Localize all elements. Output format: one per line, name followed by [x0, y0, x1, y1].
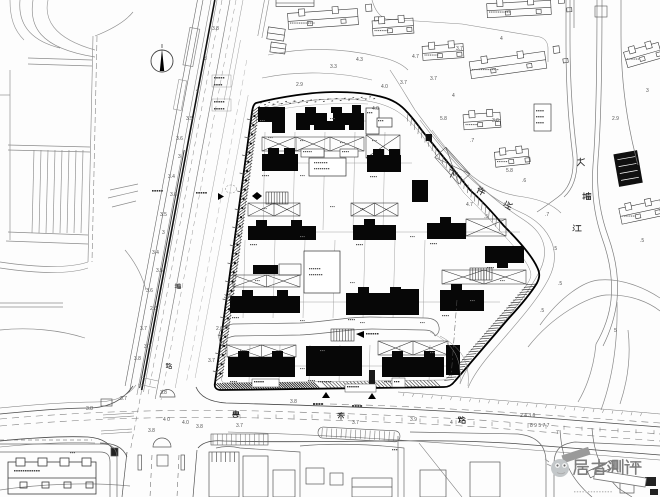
- svg-text:5.8: 5.8: [440, 116, 447, 122]
- svg-text:.5: .5: [640, 238, 644, 244]
- svg-text:4 0: 4 0: [163, 417, 170, 423]
- svg-text:4.7: 4.7: [412, 54, 419, 60]
- svg-text:3.4: 3.4: [224, 294, 231, 300]
- svg-text:3.7: 3.7: [120, 396, 127, 402]
- svg-text:.5: .5: [558, 281, 562, 287]
- svg-text:.5: .5: [484, 214, 488, 220]
- svg-text:7: 7: [556, 430, 559, 436]
- svg-text:3.3: 3.3: [330, 64, 337, 70]
- svg-text:3.8: 3.8: [134, 356, 141, 362]
- svg-text:3.7: 3.7: [140, 326, 147, 332]
- svg-text:4.0: 4.0: [182, 420, 189, 426]
- svg-text:3.7: 3.7: [144, 344, 151, 350]
- svg-text:4: 4: [452, 93, 455, 99]
- svg-text:4: 4: [500, 36, 503, 42]
- svg-text:3.7: 3.7: [430, 76, 437, 82]
- svg-text:4.7: 4.7: [466, 202, 473, 208]
- svg-text:3.7: 3.7: [236, 423, 243, 429]
- svg-text:3.5: 3.5: [156, 268, 163, 274]
- svg-text:3: 3: [162, 230, 165, 236]
- svg-text:3.9: 3.9: [410, 417, 417, 423]
- svg-text:2.6: 2.6: [150, 306, 157, 312]
- svg-text:.5: .5: [540, 308, 544, 314]
- svg-text:5: 5: [614, 328, 617, 334]
- svg-text:2.6: 2.6: [216, 326, 223, 332]
- svg-text:3.5: 3.5: [186, 116, 193, 122]
- svg-text:3.8: 3.8: [86, 406, 93, 412]
- svg-text:2.9: 2.9: [612, 116, 619, 122]
- svg-text:4: 4: [196, 88, 199, 94]
- svg-text:3: 3: [646, 88, 649, 94]
- svg-text:3: 3: [204, 56, 207, 62]
- svg-text:8 9 5 7 7: 8 9 5 7 7: [530, 423, 550, 429]
- svg-text:3: 3: [178, 154, 181, 160]
- svg-text:3.5: 3.5: [160, 212, 167, 218]
- svg-text:4: 4: [450, 420, 453, 426]
- svg-text:3.6: 3.6: [176, 136, 183, 142]
- svg-text:4.0: 4.0: [372, 106, 379, 112]
- svg-text:3.8: 3.8: [148, 428, 155, 434]
- svg-text:.7: .7: [545, 212, 549, 218]
- svg-text:3.4: 3.4: [168, 174, 175, 180]
- svg-text:2 4 3 6: 2 4 3 6: [520, 413, 536, 419]
- svg-text:.7: .7: [470, 138, 474, 144]
- svg-text:3.7: 3.7: [456, 46, 463, 52]
- svg-text:.5: .5: [553, 246, 557, 252]
- svg-text:3.8: 3.8: [212, 26, 219, 32]
- svg-text:3.4: 3.4: [152, 250, 159, 256]
- svg-text:2.9: 2.9: [296, 82, 303, 88]
- svg-text:3.6: 3.6: [170, 192, 177, 198]
- svg-text:4.0: 4.0: [381, 84, 388, 90]
- svg-text:3.8: 3.8: [196, 424, 203, 430]
- svg-text:3.6: 3.6: [146, 288, 153, 294]
- svg-text:3.7: 3.7: [400, 80, 407, 86]
- svg-text:.6: .6: [522, 178, 526, 184]
- svg-text:4.3: 4.3: [356, 57, 363, 63]
- svg-text:3.8: 3.8: [290, 399, 297, 405]
- svg-text:5.8: 5.8: [506, 168, 513, 174]
- svg-text:3.6: 3.6: [492, 118, 499, 124]
- svg-text:3.7: 3.7: [352, 420, 359, 426]
- svg-text:3.7: 3.7: [208, 358, 215, 364]
- svg-text:3.8: 3.8: [160, 390, 167, 396]
